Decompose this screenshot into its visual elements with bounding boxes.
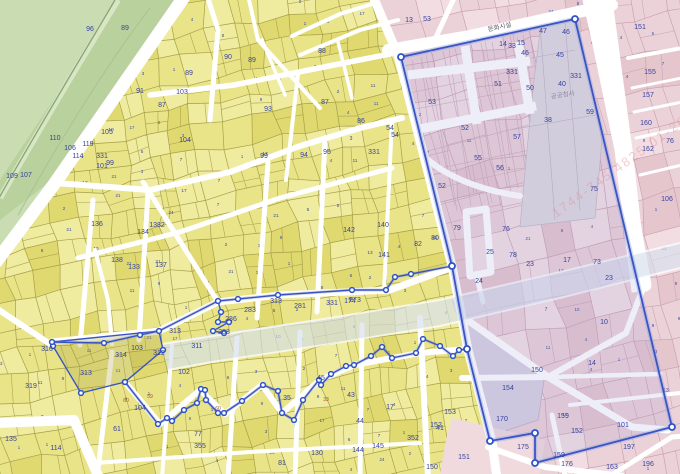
svg-text:53: 53 bbox=[423, 16, 431, 23]
svg-text:4: 4 bbox=[398, 244, 401, 250]
svg-text:79: 79 bbox=[453, 225, 461, 232]
svg-text:196: 196 bbox=[642, 461, 654, 468]
svg-text:17: 17 bbox=[173, 336, 178, 341]
svg-text:281: 281 bbox=[294, 303, 306, 310]
svg-text:54: 54 bbox=[391, 132, 399, 139]
svg-text:13: 13 bbox=[405, 17, 413, 24]
svg-text:9: 9 bbox=[317, 394, 320, 399]
svg-text:151: 151 bbox=[458, 454, 470, 461]
svg-text:119: 119 bbox=[82, 141, 93, 148]
svg-text:87: 87 bbox=[158, 102, 166, 109]
svg-text:33: 33 bbox=[323, 397, 329, 403]
svg-text:1: 1 bbox=[185, 305, 188, 310]
svg-text:73: 73 bbox=[593, 259, 601, 266]
svg-text:89: 89 bbox=[185, 70, 193, 77]
svg-text:101: 101 bbox=[96, 163, 108, 170]
svg-text:93: 93 bbox=[264, 106, 272, 113]
svg-text:21: 21 bbox=[273, 213, 279, 219]
svg-text:160: 160 bbox=[640, 120, 652, 127]
svg-text:50: 50 bbox=[526, 85, 534, 92]
svg-text:7: 7 bbox=[218, 178, 221, 184]
svg-text:21: 21 bbox=[229, 269, 234, 274]
svg-text:25: 25 bbox=[486, 249, 494, 256]
svg-text:21: 21 bbox=[115, 193, 121, 198]
svg-text:313: 313 bbox=[270, 298, 282, 305]
svg-text:94: 94 bbox=[300, 152, 308, 159]
svg-text:55: 55 bbox=[474, 155, 482, 162]
svg-text:21: 21 bbox=[66, 227, 72, 232]
svg-text:88: 88 bbox=[318, 48, 326, 55]
svg-text:44: 44 bbox=[356, 418, 364, 425]
svg-text:313: 313 bbox=[169, 328, 181, 335]
svg-text:90: 90 bbox=[224, 54, 232, 61]
svg-text:24: 24 bbox=[168, 210, 174, 215]
svg-text:151: 151 bbox=[634, 24, 646, 31]
svg-text:159: 159 bbox=[557, 413, 569, 420]
svg-text:24: 24 bbox=[380, 457, 385, 462]
svg-text:6: 6 bbox=[348, 437, 351, 442]
svg-text:331: 331 bbox=[326, 300, 338, 307]
svg-text:38: 38 bbox=[544, 117, 552, 124]
svg-text:59: 59 bbox=[147, 394, 153, 400]
svg-text:110: 110 bbox=[49, 135, 60, 142]
svg-text:163: 163 bbox=[606, 464, 618, 471]
svg-text:21: 21 bbox=[112, 174, 117, 179]
svg-text:109: 109 bbox=[6, 173, 18, 180]
svg-text:114: 114 bbox=[50, 445, 61, 452]
svg-text:137: 137 bbox=[155, 262, 167, 269]
svg-text:77: 77 bbox=[194, 431, 202, 438]
svg-text:95: 95 bbox=[323, 149, 331, 156]
svg-text:2: 2 bbox=[303, 366, 306, 372]
svg-text:104: 104 bbox=[134, 405, 146, 412]
svg-text:9: 9 bbox=[280, 235, 283, 240]
svg-text:6: 6 bbox=[227, 375, 230, 381]
svg-text:6: 6 bbox=[350, 273, 353, 279]
svg-text:144: 144 bbox=[352, 447, 364, 454]
svg-text:24: 24 bbox=[475, 278, 483, 285]
svg-text:23: 23 bbox=[526, 261, 534, 268]
svg-text:61: 61 bbox=[113, 426, 121, 433]
svg-text:134: 134 bbox=[137, 229, 149, 236]
svg-text:60: 60 bbox=[215, 406, 221, 412]
svg-text:52: 52 bbox=[461, 125, 469, 132]
svg-text:135: 135 bbox=[5, 436, 17, 443]
svg-text:311: 311 bbox=[191, 343, 202, 350]
svg-text:14: 14 bbox=[588, 360, 596, 367]
svg-text:8: 8 bbox=[321, 285, 324, 290]
svg-text:45: 45 bbox=[317, 375, 325, 382]
svg-text:101: 101 bbox=[617, 422, 629, 429]
svg-text:107: 107 bbox=[20, 172, 32, 179]
svg-text:13: 13 bbox=[367, 250, 373, 256]
svg-text:5: 5 bbox=[273, 308, 276, 313]
svg-text:89: 89 bbox=[248, 57, 256, 64]
svg-text:136: 136 bbox=[91, 221, 103, 228]
svg-text:150: 150 bbox=[531, 367, 543, 374]
svg-text:331: 331 bbox=[368, 149, 380, 156]
svg-text:82: 82 bbox=[414, 241, 422, 248]
svg-text:17: 17 bbox=[359, 11, 365, 16]
svg-text:96: 96 bbox=[86, 26, 94, 33]
svg-text:152: 152 bbox=[571, 428, 583, 435]
svg-text:51: 51 bbox=[494, 81, 502, 88]
svg-text:7: 7 bbox=[217, 202, 220, 207]
svg-text:17: 17 bbox=[130, 125, 135, 130]
svg-text:9: 9 bbox=[652, 323, 655, 329]
svg-text:176: 176 bbox=[561, 461, 573, 468]
svg-text:2: 2 bbox=[299, 0, 302, 4]
svg-text:4: 4 bbox=[426, 374, 429, 380]
svg-text:313: 313 bbox=[80, 370, 92, 377]
svg-text:3: 3 bbox=[404, 288, 407, 293]
svg-text:106: 106 bbox=[64, 145, 76, 152]
svg-text:319: 319 bbox=[25, 383, 37, 390]
svg-text:17: 17 bbox=[563, 257, 571, 264]
svg-text:1: 1 bbox=[304, 21, 307, 27]
svg-text:76: 76 bbox=[502, 226, 510, 233]
svg-text:11: 11 bbox=[374, 101, 379, 106]
svg-text:91: 91 bbox=[136, 88, 144, 95]
svg-text:7: 7 bbox=[378, 433, 381, 439]
svg-text:114: 114 bbox=[72, 153, 83, 160]
svg-text:47: 47 bbox=[539, 28, 547, 35]
svg-text:331: 331 bbox=[96, 153, 108, 160]
svg-text:286: 286 bbox=[225, 316, 237, 323]
svg-text:99: 99 bbox=[260, 153, 268, 160]
svg-text:87: 87 bbox=[321, 99, 329, 106]
svg-text:41: 41 bbox=[436, 425, 444, 432]
svg-text:11: 11 bbox=[341, 386, 346, 391]
svg-text:78: 78 bbox=[509, 252, 517, 259]
svg-text:159: 159 bbox=[553, 452, 565, 459]
svg-text:2: 2 bbox=[369, 275, 372, 281]
svg-text:80: 80 bbox=[431, 235, 439, 242]
svg-text:4: 4 bbox=[626, 74, 629, 80]
svg-text:45: 45 bbox=[556, 52, 564, 59]
svg-text:105: 105 bbox=[101, 129, 113, 136]
svg-text:6: 6 bbox=[41, 248, 44, 253]
svg-text:81: 81 bbox=[278, 460, 286, 467]
svg-text:106: 106 bbox=[661, 196, 673, 203]
svg-text:314: 314 bbox=[115, 352, 127, 359]
svg-text:154: 154 bbox=[502, 385, 514, 392]
svg-text:4: 4 bbox=[412, 141, 415, 146]
svg-text:40: 40 bbox=[558, 81, 566, 88]
svg-text:60: 60 bbox=[123, 398, 129, 404]
svg-text:43: 43 bbox=[347, 392, 355, 399]
svg-text:197: 197 bbox=[623, 444, 635, 451]
svg-text:54: 54 bbox=[386, 125, 394, 132]
svg-text:11: 11 bbox=[353, 158, 358, 164]
svg-text:331: 331 bbox=[570, 73, 582, 80]
svg-text:10: 10 bbox=[600, 319, 608, 326]
svg-text:145: 145 bbox=[372, 443, 384, 450]
svg-text:11: 11 bbox=[371, 83, 376, 88]
svg-text:157: 157 bbox=[642, 92, 654, 99]
svg-text:56: 56 bbox=[496, 165, 504, 172]
svg-text:59: 59 bbox=[586, 109, 594, 116]
svg-text:86: 86 bbox=[357, 118, 365, 125]
svg-text:140: 140 bbox=[377, 222, 389, 229]
svg-text:133: 133 bbox=[128, 264, 140, 271]
svg-text:1382: 1382 bbox=[149, 222, 165, 229]
svg-text:57: 57 bbox=[513, 134, 521, 141]
svg-text:5: 5 bbox=[141, 149, 144, 155]
svg-text:46: 46 bbox=[521, 50, 529, 57]
svg-text:14: 14 bbox=[499, 41, 507, 48]
svg-text:5: 5 bbox=[307, 207, 310, 213]
svg-text:103: 103 bbox=[176, 89, 188, 96]
svg-text:17: 17 bbox=[386, 404, 394, 411]
svg-text:46: 46 bbox=[562, 29, 570, 36]
svg-text:3: 3 bbox=[350, 136, 353, 142]
svg-text:1: 1 bbox=[288, 261, 291, 266]
svg-text:283: 283 bbox=[244, 307, 256, 314]
svg-text:35: 35 bbox=[283, 395, 291, 402]
svg-text:15: 15 bbox=[517, 40, 525, 47]
svg-text:103: 103 bbox=[131, 345, 143, 352]
svg-text:170: 170 bbox=[496, 416, 508, 423]
svg-text:130: 130 bbox=[311, 450, 323, 457]
svg-text:89: 89 bbox=[121, 25, 129, 32]
svg-text:11: 11 bbox=[38, 380, 43, 385]
svg-text:104: 104 bbox=[179, 137, 191, 144]
svg-text:141: 141 bbox=[378, 252, 390, 259]
svg-text:316: 316 bbox=[41, 346, 53, 353]
svg-text:355: 355 bbox=[194, 443, 206, 450]
svg-text:352: 352 bbox=[407, 435, 419, 442]
svg-text:17: 17 bbox=[181, 188, 187, 194]
svg-text:2: 2 bbox=[337, 89, 340, 95]
svg-text:2: 2 bbox=[225, 242, 228, 248]
svg-text:273: 273 bbox=[349, 297, 361, 304]
svg-text:312: 312 bbox=[153, 350, 165, 357]
svg-text:3: 3 bbox=[450, 368, 453, 373]
svg-text:331: 331 bbox=[506, 69, 518, 76]
svg-text:153: 153 bbox=[444, 409, 456, 416]
svg-text:138: 138 bbox=[111, 257, 123, 264]
svg-text:142: 142 bbox=[343, 227, 355, 234]
svg-text:23: 23 bbox=[605, 275, 613, 282]
svg-text:150: 150 bbox=[426, 464, 438, 471]
svg-text:53: 53 bbox=[428, 99, 436, 106]
svg-text:288: 288 bbox=[218, 329, 230, 336]
svg-text:52: 52 bbox=[438, 183, 446, 190]
svg-text:11: 11 bbox=[130, 288, 135, 293]
svg-text:17: 17 bbox=[319, 418, 325, 423]
svg-text:33: 33 bbox=[508, 43, 516, 50]
svg-text:175: 175 bbox=[517, 444, 529, 451]
svg-text:155: 155 bbox=[644, 69, 656, 76]
svg-text:7: 7 bbox=[180, 157, 183, 163]
svg-text:9: 9 bbox=[62, 376, 65, 382]
svg-text:102: 102 bbox=[178, 369, 190, 376]
